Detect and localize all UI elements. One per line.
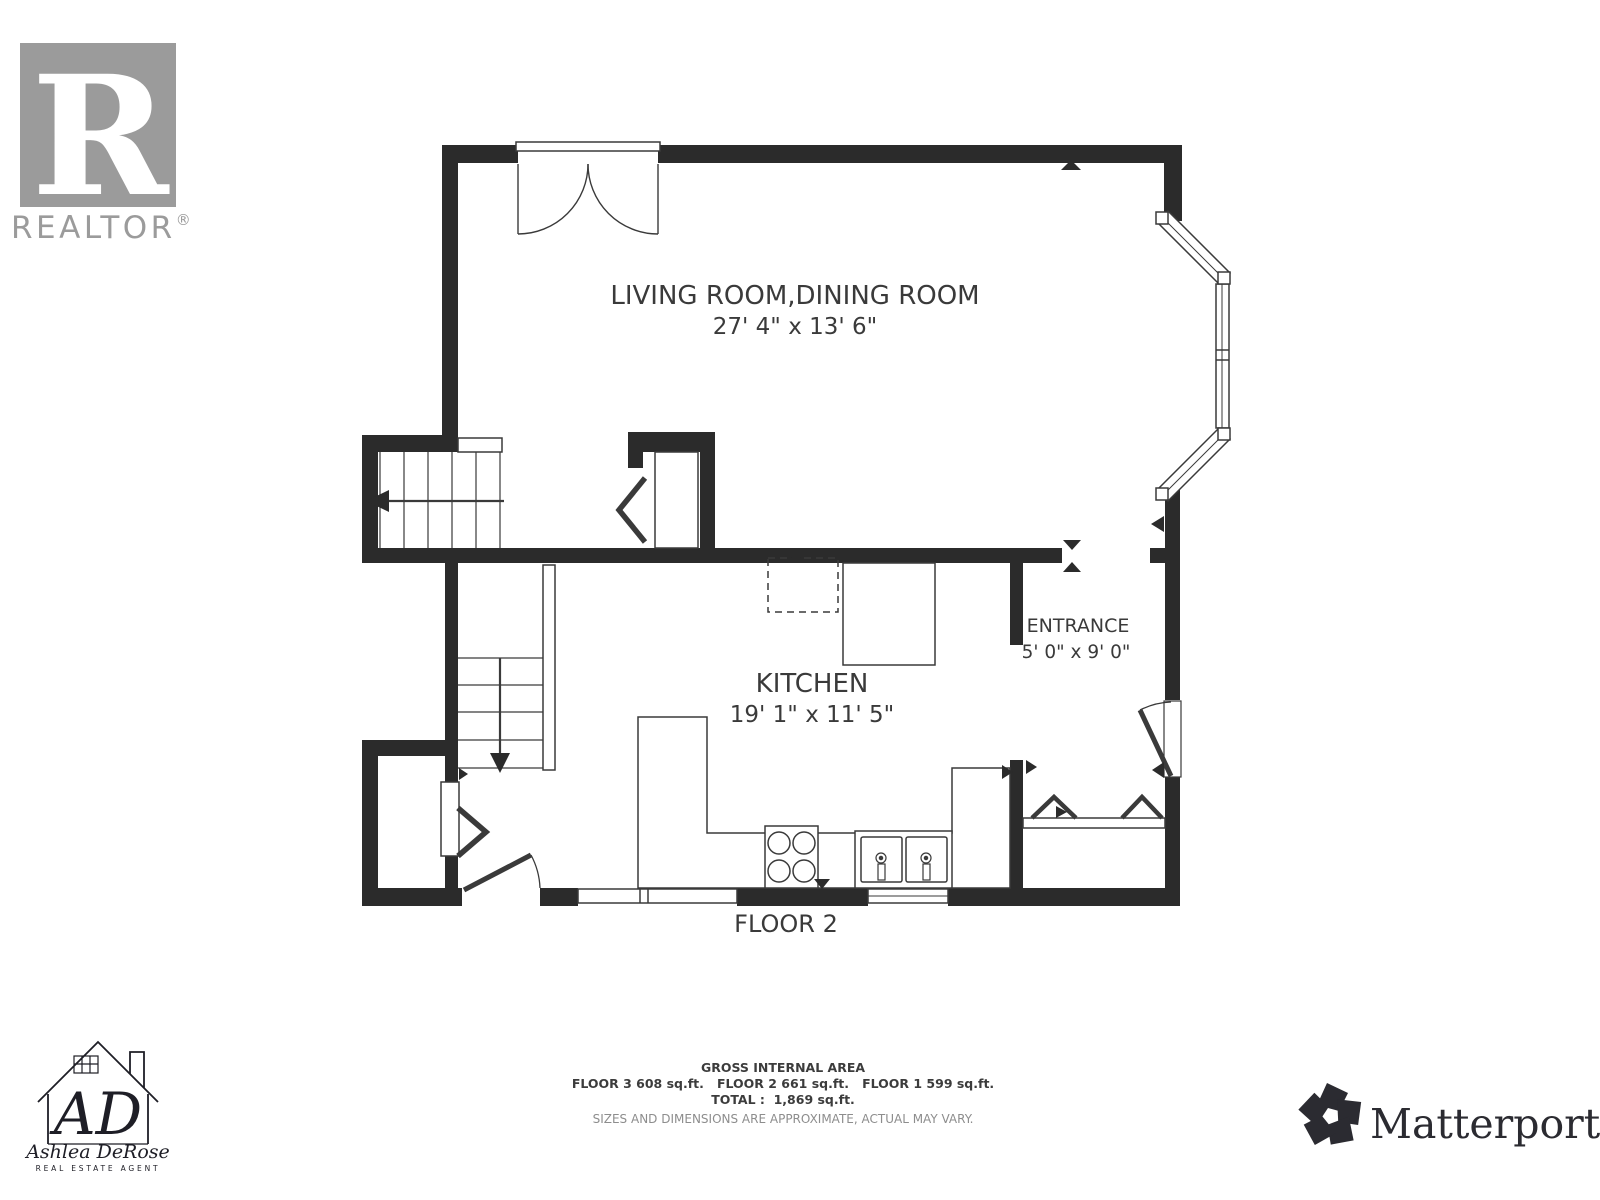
- footer-area-summary: GROSS INTERNAL AREA FLOOR 3 608 sq.ft. F…: [433, 1060, 1133, 1127]
- realtor-logo-r: R: [31, 39, 170, 233]
- living-room-label: LIVING ROOM,DINING ROOM: [610, 281, 979, 311]
- wall-bottom-4: [948, 888, 1180, 906]
- sink-faucet-dot: [880, 857, 883, 860]
- sink-handle: [923, 864, 930, 880]
- bifold-door-left: [1032, 797, 1076, 818]
- wall-entrance-upper: [1010, 563, 1023, 645]
- stove: [765, 826, 818, 888]
- sink-handle: [878, 864, 885, 880]
- gross-internal-area-title: GROSS INTERNAL AREA: [433, 1060, 1133, 1076]
- stair-arrow-down: [490, 753, 510, 773]
- fixtures: [441, 142, 1230, 903]
- wall-closet-left: [362, 740, 378, 888]
- marker-triangle: [1063, 562, 1081, 572]
- window-bottom-left: [578, 889, 737, 903]
- wall-midcloset-right: [700, 452, 715, 553]
- floor-areas: FLOOR 3 608 sq.ft. FLOOR 2 661 sq.ft. FL…: [433, 1076, 1133, 1092]
- wall-bottom-1: [362, 888, 462, 906]
- entrance-dimensions: 5' 0" x 9' 0": [1022, 642, 1131, 663]
- stove-burner: [793, 832, 815, 854]
- side-door-leaf: [464, 855, 531, 890]
- closet-door-chevron: [458, 808, 486, 856]
- sink-faucet-dot: [925, 857, 928, 860]
- wall-bottom-3: [737, 888, 868, 906]
- stairs-down: [458, 658, 543, 773]
- bay-window-line: [1162, 433, 1225, 496]
- bifold-door-right: [1122, 797, 1162, 818]
- french-door-threshold: [516, 142, 660, 151]
- wall-right-bottom: [1165, 777, 1180, 906]
- walls: [362, 145, 1182, 906]
- matterport-logo: Matterport®: [1278, 1072, 1600, 1152]
- marker-triangle: [1151, 516, 1164, 532]
- wall-right-mid: [1165, 490, 1180, 700]
- total-area: TOTAL : 1,869 sq.ft.: [433, 1092, 1133, 1108]
- stair-rail-down: [543, 565, 555, 770]
- floor-plan-page: LIVING ROOM,DINING ROOM 27' 4" x 13' 6" …: [0, 0, 1600, 1200]
- stairs-up: [366, 452, 504, 548]
- wall-top-left: [442, 145, 518, 163]
- bay-window-post: [1218, 428, 1230, 440]
- doors: [458, 164, 1171, 890]
- wall-closet-top: [362, 740, 445, 756]
- bay-window-line: [1162, 217, 1225, 280]
- marker-triangle: [459, 768, 468, 780]
- kitchen-label: KITCHEN: [756, 669, 869, 699]
- french-door-arc-right: [588, 164, 658, 234]
- midcloset-door-chevron: [619, 478, 645, 542]
- bay-window-post: [1156, 488, 1168, 500]
- kitchen-sink: [855, 831, 952, 888]
- wall-closet-right-b: [445, 856, 458, 888]
- bay-window-post: [1156, 212, 1168, 224]
- agent-name: Ashlea DeRose: [24, 1141, 170, 1163]
- wall-top-right: [658, 145, 1182, 163]
- matterport-pinwheel-icon: [1295, 1083, 1367, 1152]
- entrance-label: ENTRANCE: [1027, 615, 1130, 637]
- wall-closet-right-a: [445, 740, 458, 782]
- midcloset-door-panel: [655, 452, 698, 548]
- french-door-arc-left: [518, 164, 588, 234]
- wall-bottom-2: [540, 888, 578, 906]
- kitchen-counter: [638, 717, 1010, 888]
- stair-rail-top: [458, 438, 502, 452]
- wall-midcloset-stub: [628, 432, 643, 468]
- wall-living-left: [442, 163, 458, 445]
- stove-burner: [768, 860, 790, 882]
- agent-monogram: AD: [49, 1080, 142, 1148]
- kitchen-dimensions: 19' 1" x 11' 5": [730, 702, 894, 728]
- agent-logo: AD Ashlea DeRose REAL ESTATE AGENT: [18, 1022, 188, 1172]
- dashed-appliance: [768, 558, 838, 612]
- marker-triangle: [1063, 540, 1081, 550]
- plan-markers: [459, 160, 1164, 889]
- disclaimer: SIZES AND DIMENSIONS ARE APPROXIMATE, AC…: [433, 1111, 1133, 1127]
- entry-closet-front: [1023, 818, 1165, 828]
- closet-door-panel: [441, 782, 459, 856]
- stove-burner: [768, 832, 790, 854]
- living-room-dimensions: 27' 4" x 13' 6": [713, 314, 877, 340]
- realtor-wordmark: REALTOR®: [11, 210, 191, 246]
- floor-plan-drawing: LIVING ROOM,DINING ROOM 27' 4" x 13' 6" …: [0, 0, 1600, 1200]
- marker-triangle: [1152, 762, 1164, 778]
- floor-label: FLOOR 2: [734, 910, 838, 938]
- wall-kitchen-left: [445, 563, 458, 740]
- side-door-arc: [531, 855, 540, 888]
- tall-cabinet: [843, 563, 935, 665]
- realtor-logo: R REALTOR®: [8, 38, 218, 253]
- matterport-wordmark: Matterport®: [1370, 1100, 1600, 1148]
- stove-burner: [793, 860, 815, 882]
- wall-entrance-lower: [1010, 760, 1023, 906]
- bay-window-post: [1218, 272, 1230, 284]
- marker-triangle: [1026, 760, 1037, 774]
- agent-title: REAL ESTATE AGENT: [36, 1164, 161, 1172]
